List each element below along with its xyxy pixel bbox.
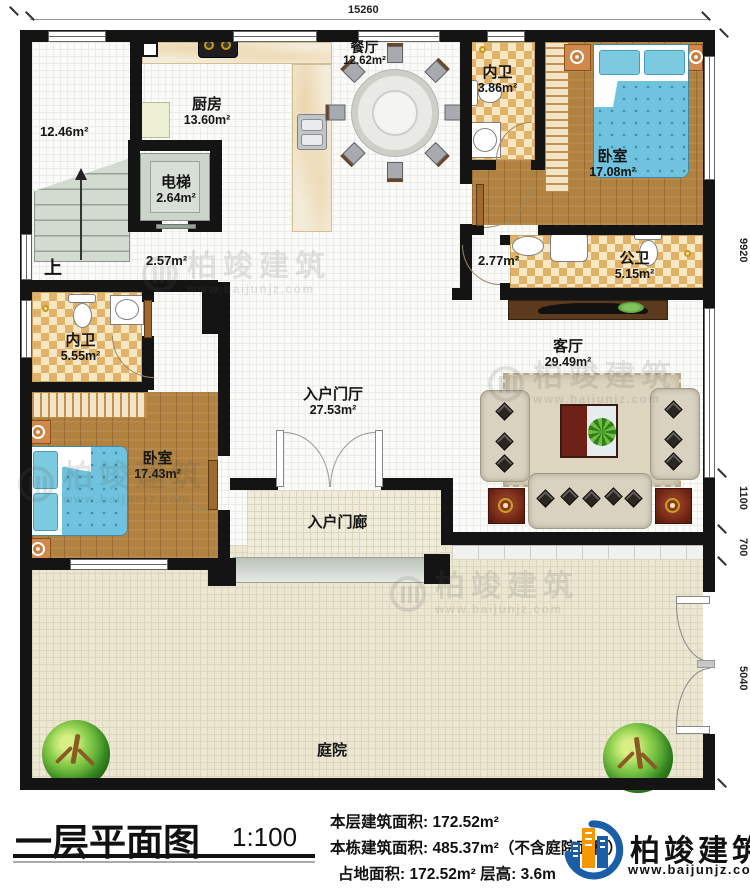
- elevator-door: [156, 224, 196, 229]
- dining-table-inner: [372, 90, 418, 136]
- dimension-tick: [9, 6, 19, 16]
- gate-leaf: [676, 726, 710, 734]
- sofa-left: [480, 390, 530, 482]
- porch-column: [424, 554, 450, 584]
- wall-tv-a: [452, 288, 472, 300]
- stair-arrow-icon: [75, 162, 87, 180]
- room-label-dining: 餐厅 12.62m²: [322, 39, 407, 68]
- table-plant: [588, 418, 616, 446]
- lamp-icon: [31, 425, 45, 439]
- window: [233, 31, 317, 42]
- room-label-bedroom-right: 卧室 17.08m²: [565, 148, 660, 180]
- kitchen-sink-bowl: [301, 119, 323, 131]
- living-steps: [452, 545, 703, 559]
- pillow: [33, 451, 58, 489]
- room-label-courtyard: 庭院: [302, 742, 362, 759]
- lamp-icon: [570, 50, 584, 64]
- sheet-fold: [594, 77, 688, 107]
- shower-hook-icon: [42, 305, 49, 312]
- room-label-bath-top: 内卫 3.86m²: [455, 64, 540, 96]
- toilet-tank: [68, 294, 96, 303]
- nightstand: [688, 44, 703, 71]
- drawing-scale: 1:100: [232, 822, 297, 853]
- window: [487, 31, 525, 42]
- wall-public-bath-west-a: [500, 235, 510, 245]
- wall-bedroom-right-south-b: [538, 225, 715, 235]
- info-footprint-height: 占地面积: 172.52m² 层高: 3.6m: [338, 862, 556, 884]
- dimension-tick: [717, 556, 727, 566]
- stair-up-label: 上: [44, 254, 62, 280]
- pillow: [33, 493, 58, 531]
- nightstand: [564, 44, 591, 71]
- shower-hook-icon: [684, 250, 691, 257]
- wall-bedroom-left-east-a: [218, 282, 230, 456]
- porch-pier-left: [208, 558, 236, 586]
- company-logo-icon: [558, 814, 626, 886]
- compass-ornament-icon: [665, 498, 680, 513]
- wall-hall-north: [32, 280, 218, 292]
- wall-bath-top-south-a: [467, 160, 496, 170]
- compass-ornament-icon: [498, 498, 513, 513]
- window: [704, 308, 715, 478]
- sink-basin: [473, 128, 497, 152]
- toilet-bowl: [73, 303, 92, 328]
- dimension-right-9920: 9920: [737, 238, 749, 262]
- door-leaf-bedroom-right: [476, 184, 484, 226]
- dimension-right-700: 700: [737, 538, 749, 556]
- area-label-hall-mid: 2.57m²: [146, 253, 187, 268]
- wall-outer-bottom: [20, 778, 715, 790]
- title-underline-thin: [13, 861, 315, 863]
- sofa-cushion: [495, 432, 513, 450]
- door-leaf-bedroom-left: [208, 460, 218, 510]
- tree-branch: [77, 748, 95, 766]
- sofa-cushion: [604, 487, 622, 505]
- dimension-top: 15260: [348, 4, 379, 16]
- wall-elevator-top: [128, 140, 222, 151]
- room-label-bedroom-left: 卧室 17.43m²: [110, 450, 205, 482]
- dimension-tick: [717, 778, 727, 788]
- dimension-right-1100: 1100: [737, 486, 749, 510]
- side-table: [655, 488, 692, 524]
- sheet-fold: [59, 447, 91, 535]
- wall-niche: [142, 42, 158, 57]
- room-label-living: 客厅 29.49m²: [518, 338, 618, 370]
- stair-direction-line: [80, 172, 82, 260]
- dimension-line-top: [30, 19, 710, 20]
- wall-tv-b: [500, 288, 715, 300]
- room-label-foyer: 入户门厅 27.53m²: [283, 386, 383, 418]
- floor-plan-sheet: 厨房 13.60m² 餐厅 12.62m² 电梯 2.64m² 内卫 3.86m…: [0, 0, 750, 895]
- dimension-tick: [717, 468, 727, 478]
- sofa-right: [650, 388, 700, 480]
- sofa-cushion: [536, 489, 554, 507]
- chair-icon: [329, 105, 346, 121]
- wall-bedroom-left-east-b: [218, 510, 230, 558]
- gate-leaf: [676, 596, 710, 604]
- wall-living-south: [441, 532, 715, 545]
- title-underline-thick: [13, 854, 315, 858]
- wall-outer-left: [20, 30, 32, 790]
- washing-machine: [550, 232, 588, 262]
- decor-plant: [618, 302, 644, 313]
- room-label-bath-left: 内卫 5.55m²: [38, 332, 123, 364]
- pillow: [599, 50, 640, 75]
- wall-bath-left-south: [20, 382, 148, 392]
- area-label-stairhall: 12.46m²: [40, 124, 88, 139]
- room-label-porch: 入户门廊: [290, 514, 385, 531]
- area-label-hall-right: 2.77m²: [478, 253, 519, 268]
- room-label-elevator: 电梯 2.64m²: [140, 174, 212, 206]
- sofa-cushion: [664, 430, 682, 448]
- room-label-kitchen: 厨房 13.60m²: [152, 96, 262, 128]
- pillow: [644, 50, 685, 75]
- sofa-cushion: [624, 489, 642, 507]
- wardrobe-left: [25, 392, 147, 418]
- sofa-cushion: [495, 454, 513, 472]
- wall-elevator-left: [128, 151, 140, 223]
- dimension-tick: [717, 524, 727, 534]
- entry-door-leaf: [375, 430, 383, 487]
- entry-door-leaf: [276, 430, 284, 487]
- kitchen-sink-bowl2: [301, 134, 323, 146]
- window: [21, 234, 32, 280]
- gate-divider: [697, 660, 715, 668]
- sofa-cushion: [560, 487, 578, 505]
- dimension-tick: [719, 28, 729, 38]
- sink-basin: [115, 299, 139, 320]
- chair-icon: [387, 162, 403, 179]
- porch-step: [233, 557, 431, 583]
- wall-bath-top-south-b: [531, 160, 545, 170]
- wall-stub: [202, 282, 218, 334]
- sofa-cushion: [664, 452, 682, 470]
- window: [70, 559, 168, 570]
- lamp-icon: [689, 50, 703, 64]
- wall-foyer-south-a: [230, 478, 278, 490]
- info-floor-area: 本层建筑面积: 172.52m²: [330, 810, 499, 832]
- shower-hook-icon: [479, 46, 486, 53]
- window: [704, 56, 715, 180]
- company-url: www.baijunjz.com: [628, 862, 750, 877]
- room-label-public-bath: 公卫 5.15m²: [592, 250, 677, 282]
- window: [21, 300, 32, 358]
- dimension-right-5040: 5040: [737, 666, 749, 690]
- side-table: [488, 488, 525, 524]
- lamp-icon: [31, 542, 45, 556]
- wall-bedroom-right-south-a: [460, 225, 484, 235]
- wall-bath-wardrobe: [535, 42, 545, 164]
- tree-branch: [617, 751, 635, 769]
- chair-icon: [445, 105, 462, 121]
- door-leaf-bath-left: [144, 300, 152, 338]
- sofa-cushion: [664, 400, 682, 418]
- wall-stair-kitchen: [130, 42, 142, 144]
- sofa-cushion: [495, 402, 513, 420]
- window: [48, 31, 106, 42]
- sofa-bottom: [528, 473, 652, 529]
- sofa-cushion: [582, 489, 600, 507]
